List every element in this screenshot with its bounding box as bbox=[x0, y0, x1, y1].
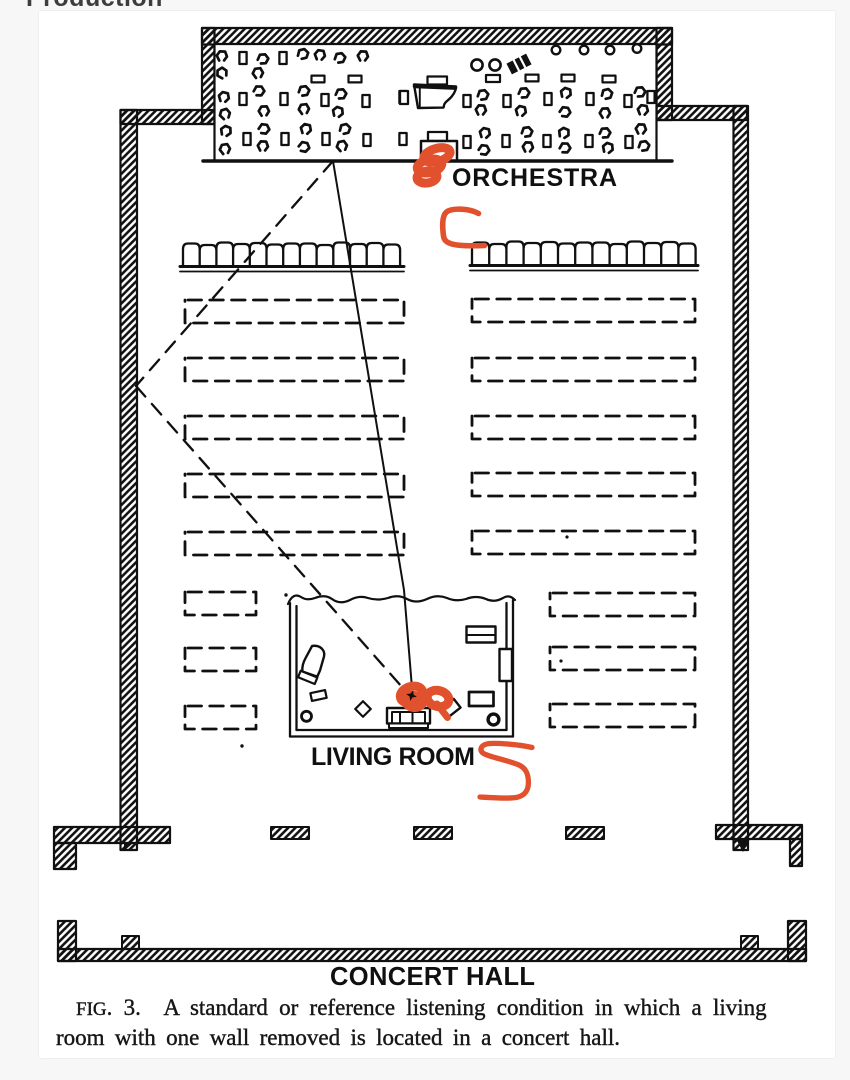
svg-text:LIVING ROOM: LIVING ROOM bbox=[311, 743, 475, 771]
svg-text:CONCERT HALL: CONCERT HALL bbox=[330, 963, 535, 991]
svg-text:ORCHESTRA: ORCHESTRA bbox=[452, 164, 617, 192]
